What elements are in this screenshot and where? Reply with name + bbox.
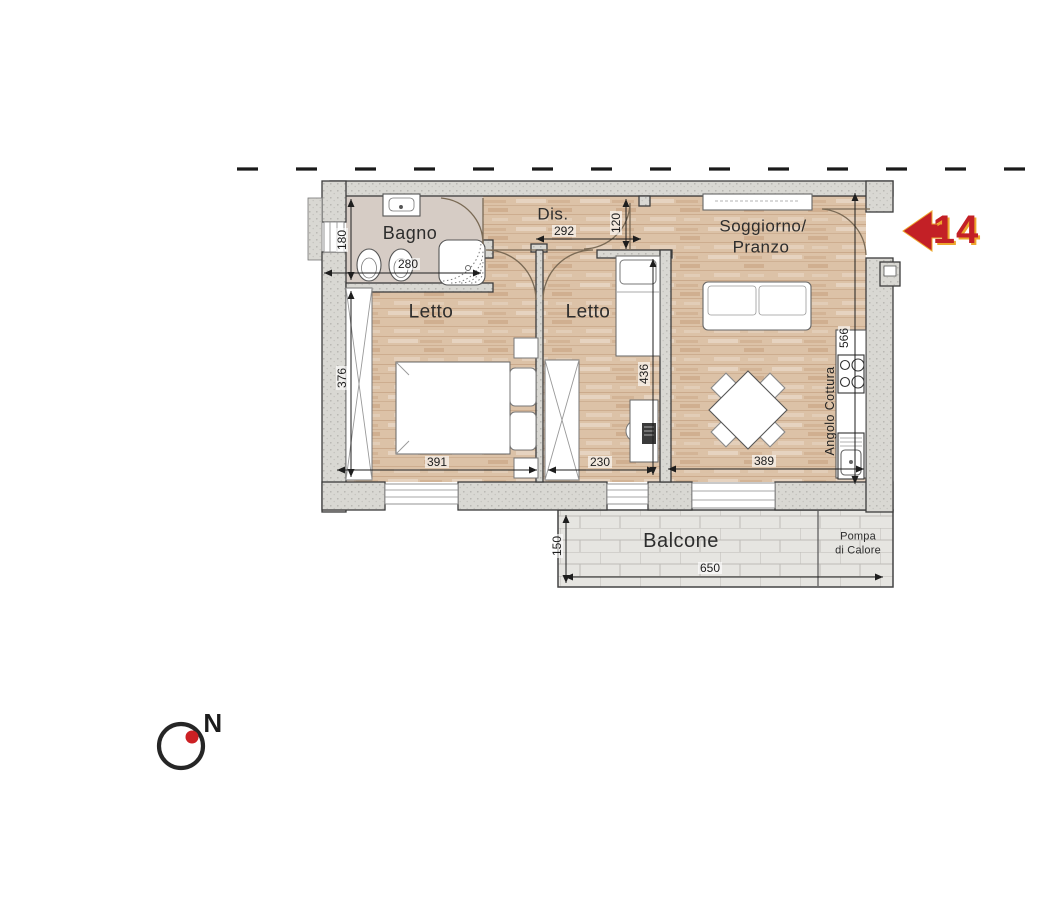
sideboard: [703, 194, 812, 210]
balcony-door: [692, 483, 775, 508]
wall-topleft-pilaster: [322, 181, 346, 222]
room-label-balcone: Balcone: [643, 531, 719, 551]
room-label-soggiorno-2: Pranzo: [733, 239, 790, 256]
wall-left-outer-strip: [308, 198, 322, 260]
dim-bagno-h: 180: [336, 228, 348, 252]
room-label-letto-left: Letto: [409, 303, 454, 322]
north-compass-icon: [159, 724, 203, 768]
double-bed: [396, 362, 510, 454]
desk-monitor: [642, 423, 656, 444]
dim-dis-door: 120: [610, 211, 622, 235]
wall-bottom-1: [322, 482, 385, 510]
dim-sog-h: 566: [838, 326, 850, 350]
shower: [439, 240, 485, 285]
shower-drain: [466, 266, 471, 271]
dim-letto-center-h: 436: [638, 362, 650, 386]
north-label: N: [203, 710, 222, 736]
pillow: [510, 368, 536, 406]
dim-bagno-w: 280: [396, 258, 420, 270]
dim-balcone-w: 650: [698, 562, 722, 574]
unit-number: 14: [933, 210, 980, 250]
utility-box-inner: [884, 266, 896, 276]
wall-letto-soggiorno: [660, 250, 671, 482]
pillow: [510, 412, 536, 450]
dim-letto-left-w: 391: [425, 456, 449, 468]
window-letto-center: [607, 484, 648, 504]
room-label-bagno: Bagno: [383, 224, 438, 242]
dim-dis-w: 292: [552, 225, 576, 237]
floor-plan-page: Bagno Dis. Letto Letto Soggiorno/ Pranzo…: [0, 0, 1049, 900]
wall-right-upper: [866, 181, 893, 212]
room-label-dis: Dis.: [537, 206, 568, 223]
wall-bottom-3: [648, 482, 692, 510]
pillow: [620, 260, 656, 284]
room-label-soggiorno-1: Soggiorno/: [719, 218, 806, 235]
dim-balcone-d: 150: [551, 534, 563, 558]
label-angolo-cottura: Angolo Cottura: [824, 367, 837, 456]
label-pompa-2: di Calore: [835, 546, 881, 557]
dim-sog-w: 389: [752, 455, 776, 467]
wall-bottom-2: [458, 482, 607, 510]
floor-plan-drawing: [0, 0, 1049, 900]
room-label-letto-center: Letto: [566, 303, 611, 322]
wall-bedrooms-partition: [536, 250, 543, 482]
wall-dis-sog-stub: [639, 196, 650, 206]
dim-letto-center-w: 230: [588, 456, 612, 468]
label-pompa-1: Pompa: [840, 532, 876, 543]
kitchen: [836, 330, 866, 479]
wall-right-lower: [866, 258, 893, 512]
nightstand: [514, 338, 538, 358]
window-letto-left: [385, 484, 458, 504]
dim-letto-left-h: 376: [336, 366, 348, 390]
nightstand: [514, 458, 538, 478]
